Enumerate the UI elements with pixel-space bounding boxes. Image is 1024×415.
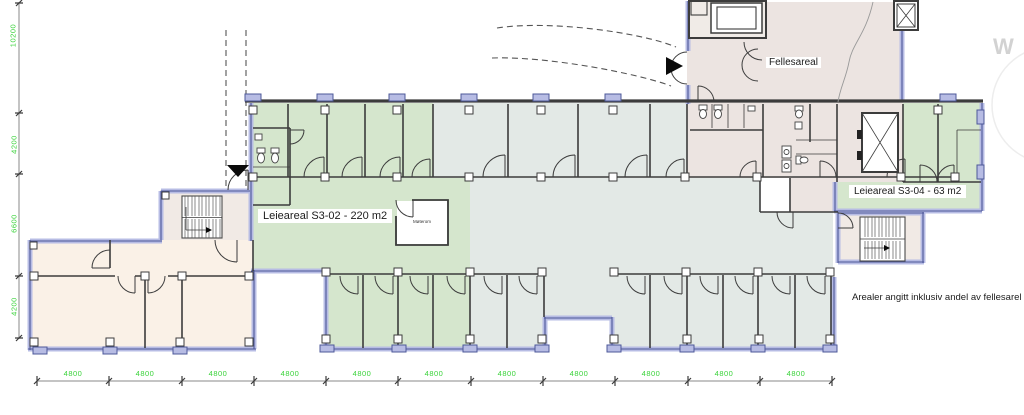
dim-left-0: 10200 xyxy=(9,16,18,56)
label-area-note: Arealer angitt inklusiv andel av fellesa… xyxy=(852,292,1022,303)
dim-bottom-2: 4800 xyxy=(198,369,238,378)
label-leieareal-s302: Leieareal S3-02 - 220 m2 xyxy=(258,209,392,223)
dim-left-3: 4200 xyxy=(10,287,19,327)
area-left-wing xyxy=(28,240,253,350)
dim-left-2: 6600 xyxy=(10,204,19,244)
dim-bottom-0: 4800 xyxy=(53,369,93,378)
entrance-arrow-right-icon xyxy=(666,57,683,75)
dim-left-1: 4200 xyxy=(10,125,19,165)
dim-bottom-5: 4800 xyxy=(414,369,454,378)
elevator-ne-icon xyxy=(894,1,918,30)
dim-bottom-4: 4800 xyxy=(342,369,382,378)
dim-bottom-7: 4800 xyxy=(559,369,599,378)
dim-bottom-10: 4800 xyxy=(776,369,816,378)
dim-bottom-3: 4800 xyxy=(270,369,310,378)
dim-bottom-1: 4800 xyxy=(125,369,165,378)
approach-dashed-curves xyxy=(492,25,676,86)
shaft-nw-icon xyxy=(689,1,766,38)
label-fellesareal: Fellesareal xyxy=(766,57,821,68)
floor-plan-page: Fellesareal Leieareal S3-02 - 220 m2 Møt… xyxy=(0,0,1024,415)
stairs-right-icon xyxy=(860,217,905,261)
label-leieareal-s304: Leieareal S3-04 - 63 m2 xyxy=(849,185,966,198)
elevator-core-icon xyxy=(857,113,898,172)
stairs-left-icon xyxy=(182,196,222,238)
watermark-circle xyxy=(992,47,1024,163)
label-moterom: Møterom xyxy=(398,219,446,224)
watermark-letter: W xyxy=(993,34,1015,60)
dim-bottom-9: 4800 xyxy=(704,369,744,378)
dim-bottom-8: 4800 xyxy=(631,369,671,378)
floor-plan-drawing xyxy=(0,0,1024,415)
dim-bottom-6: 4800 xyxy=(487,369,527,378)
